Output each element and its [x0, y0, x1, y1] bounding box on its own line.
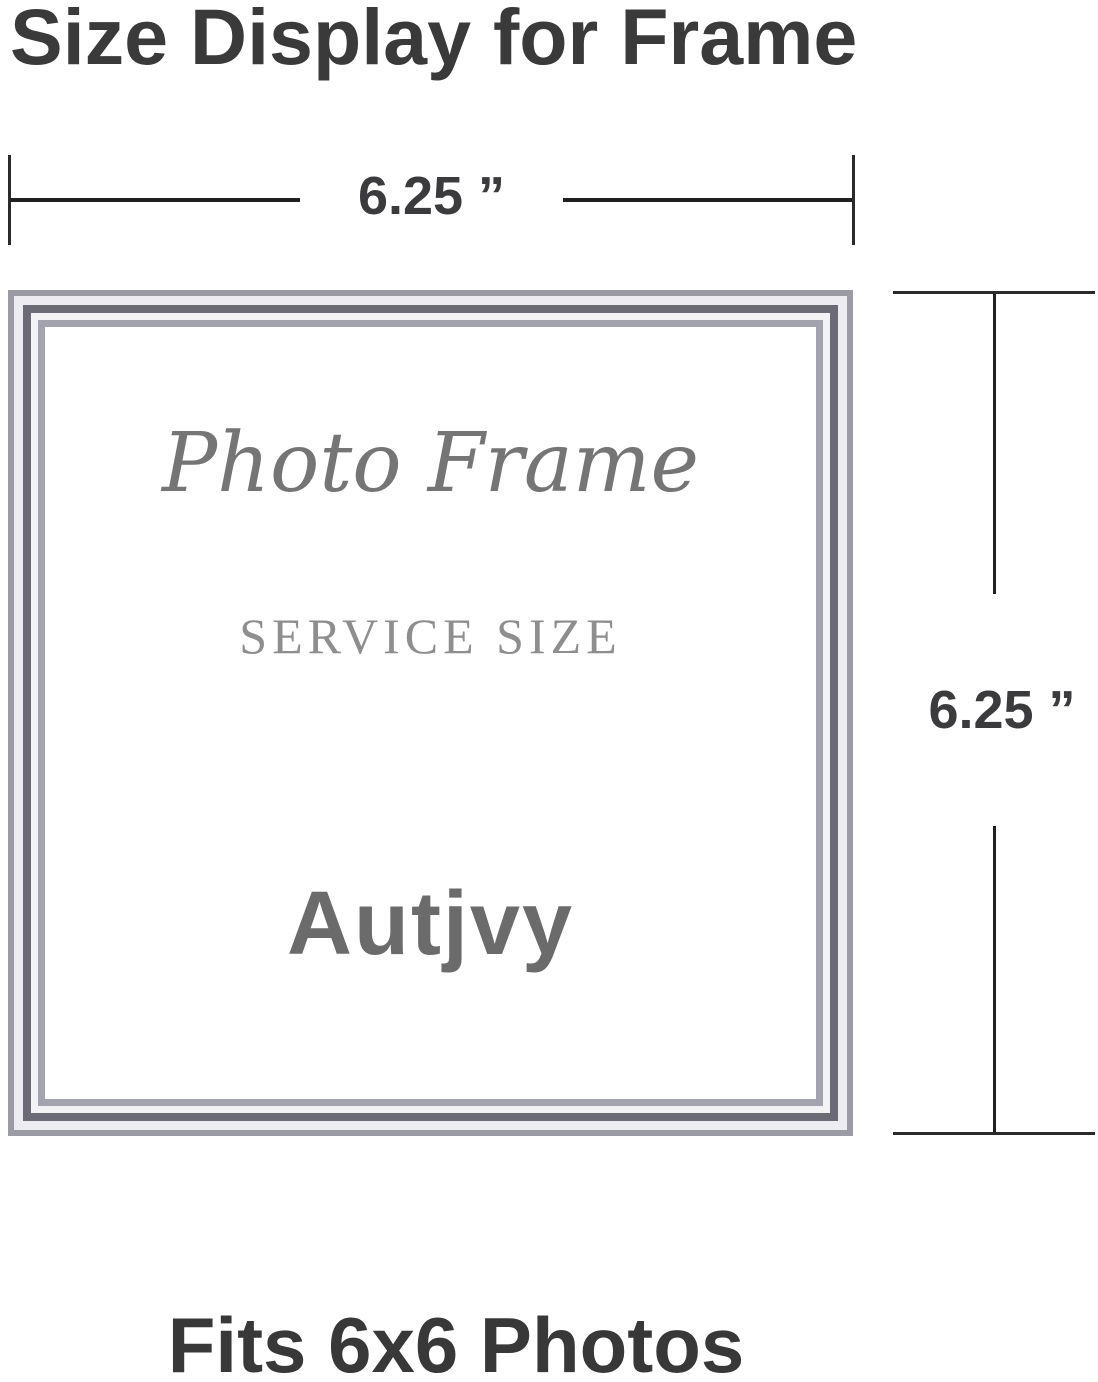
fits-size-caption: Fits 6x6 Photos: [0, 1306, 912, 1382]
service-size-text: SERVICE SIZE: [45, 609, 816, 664]
frame-inner-line: Photo Frame SERVICE SIZE Autjvy: [38, 320, 823, 1106]
width-dimension-label: 6.25 ”: [358, 165, 505, 227]
height-dimension: 6.25 ”: [893, 291, 1095, 1135]
width-dimension-row: 6.25 ”: [10, 155, 853, 245]
height-label-wrap: 6.25 ”: [920, 594, 1067, 826]
frame-light-band-outer: Photo Frame SERVICE SIZE Autjvy: [14, 296, 847, 1130]
frame-dark-line: Photo Frame SERVICE SIZE Autjvy: [23, 305, 838, 1121]
height-tick-bottom: [893, 1132, 1095, 1135]
width-line-right: [563, 198, 853, 202]
photo-frame: Photo Frame SERVICE SIZE Autjvy: [8, 290, 853, 1136]
width-line-left: [10, 198, 300, 202]
height-line-lower: [993, 826, 996, 1132]
frame-size-diagram: Size Display for Frame 6.25 ” Photo Fram…: [0, 0, 1098, 1382]
width-dimension: 6.25 ”: [8, 155, 855, 245]
height-line-upper: [993, 294, 996, 594]
height-dimension-label: 6.25 ”: [928, 679, 1075, 741]
frame-interior: Photo Frame SERVICE SIZE Autjvy: [45, 327, 816, 1099]
width-tick-right: [852, 155, 855, 245]
page-title: Size Display for Frame: [10, 0, 857, 81]
brand-logo-text: Autjvy: [45, 875, 816, 974]
photo-frame-script-text: Photo Frame: [45, 419, 816, 509]
frame-light-band-inner: Photo Frame SERVICE SIZE Autjvy: [31, 313, 830, 1113]
